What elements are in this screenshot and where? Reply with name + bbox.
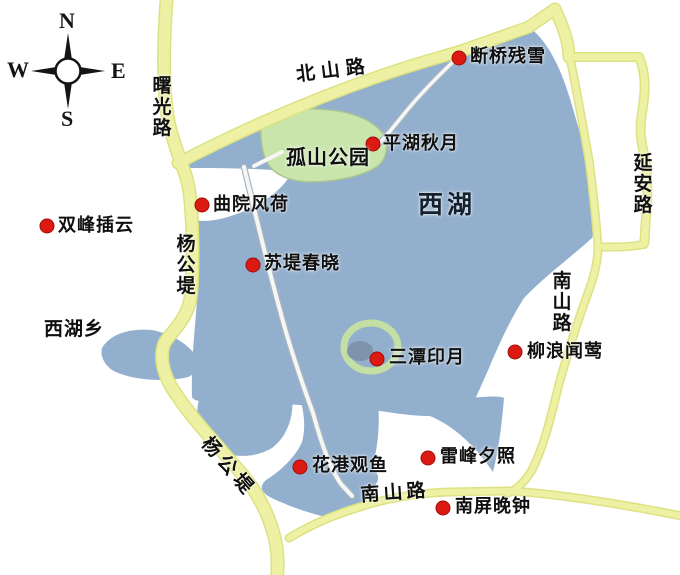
santan-inner-islet	[347, 341, 373, 361]
spot-label-duanqiao-canxue: 断桥残雪	[470, 47, 546, 66]
spot-label-liulang-wenying: 柳浪闻莺	[527, 342, 603, 361]
marker-nanping-wanzhong	[436, 501, 450, 515]
lake-label: 西湖	[418, 192, 476, 218]
marker-quyuan-fenghe	[195, 198, 209, 212]
compass-label-s: S	[61, 106, 73, 132]
spot-label-sudi-chunxiao: 苏堤春晓	[264, 254, 340, 273]
marker-leifeng-xizhao	[421, 451, 435, 465]
compass-hub	[56, 59, 81, 84]
map-canvas	[0, 0, 680, 575]
spot-label-shuangfeng-chayun: 双峰插云	[58, 216, 134, 235]
spot-label-nanping-wanzhong: 南屏晚钟	[455, 497, 531, 516]
road-yanan-corner	[600, 244, 644, 247]
road-label-yanggong-upper: 杨公堤	[175, 234, 197, 297]
compass-label-w: W	[7, 57, 29, 83]
spot-label-pinghu-qiuyue: 平湖秋月	[383, 134, 459, 153]
compass-label-e: E	[111, 58, 126, 84]
marker-duanqiao-canxue	[452, 51, 466, 65]
road-label-shuguang: 曙光路	[151, 76, 173, 139]
spot-label-santan-yinyue: 三潭印月	[389, 348, 465, 367]
marker-huagang-guanyu	[293, 460, 307, 474]
compass-label-n: N	[59, 8, 75, 34]
spot-label-huagang-guanyu: 花港观鱼	[312, 456, 388, 475]
spot-label-quyuan-fenghe: 曲院风荷	[213, 195, 289, 214]
compass-rose	[31, 33, 105, 109]
gushan-park-label: 孤山公园	[286, 148, 370, 169]
spot-label-leifeng-xizhao: 雷峰夕照	[440, 447, 516, 466]
west-lake-map: { "colors": { "lake": "#92afcd", "lake_d…	[0, 0, 680, 575]
marker-liulang-wenying	[508, 345, 522, 359]
marker-santan-yinyue	[370, 352, 384, 366]
road-label-yanan: 延安路	[632, 153, 654, 216]
marker-sudi-chunxiao	[246, 258, 260, 272]
road-label-nanshan-east: 南山路	[551, 271, 573, 334]
marker-shuangfeng-chayun	[40, 219, 54, 233]
township-label: 西湖乡	[44, 320, 104, 340]
pond-west	[101, 330, 197, 380]
